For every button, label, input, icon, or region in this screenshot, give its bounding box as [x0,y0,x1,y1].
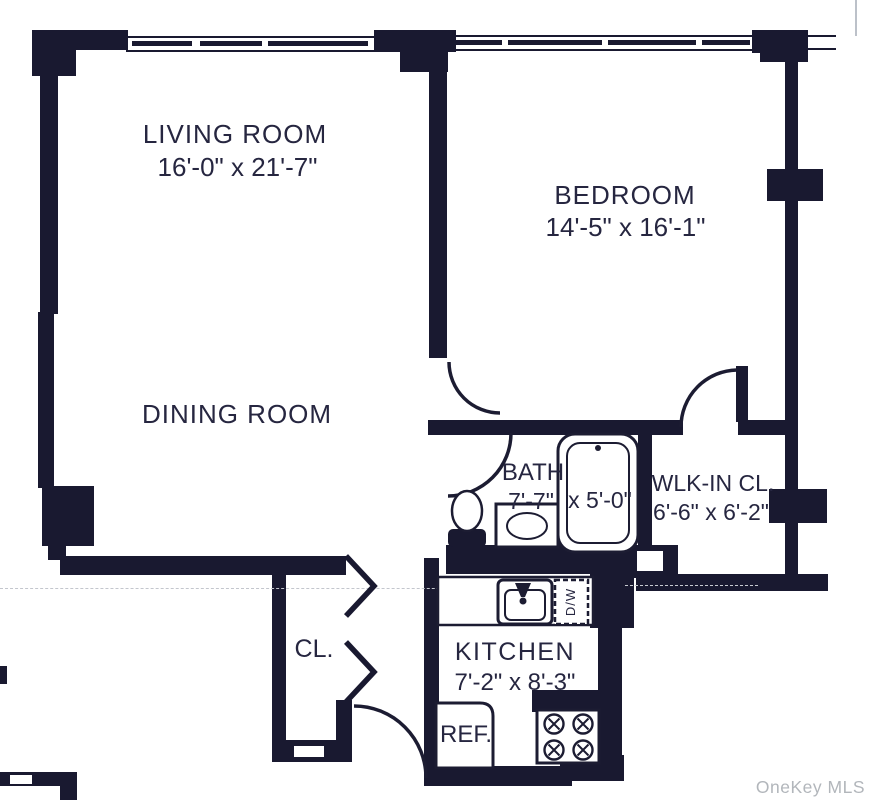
bath-label: BATH [491,459,575,487]
living-room-dims: 16'-0" x 21'-7" [110,153,365,183]
dining-room-label: DINING ROOM [112,400,362,430]
walkin-closet-door-arc [681,370,737,427]
bath-dim-b: x 5'-0" [552,487,648,513]
dishwasher-label: D/W [562,581,580,623]
toilet-bowl [452,491,482,531]
floor-plan: LIVING ROOM 16'-0" x 21'-7" BEDROOM 14'-… [0,0,869,800]
bathtub-drain [595,445,601,451]
bedroom-label: BEDROOM [500,181,750,211]
refrigerator-label: REF. [432,721,500,749]
bifold-door-icon [346,642,374,702]
living-room-label: LIVING ROOM [110,120,360,150]
kitchen-dims: 7'-2" x 8'-3" [434,669,596,697]
faucet-icon [520,598,527,605]
bedroom-dims: 14'-5" x 16'-1" [498,213,753,243]
walkin-closet-dims: 6'-6" x 6'-2" [638,499,784,525]
walkin-closet-label: WLK-IN CL. [640,470,786,496]
entry-door-arc [354,706,426,778]
bifold-door-icon [346,556,374,616]
closet-label: CL. [283,635,345,664]
watermark: OneKey MLS [690,777,865,797]
bedroom-door-arc [449,362,500,413]
kitchen-label: KITCHEN [436,638,594,667]
